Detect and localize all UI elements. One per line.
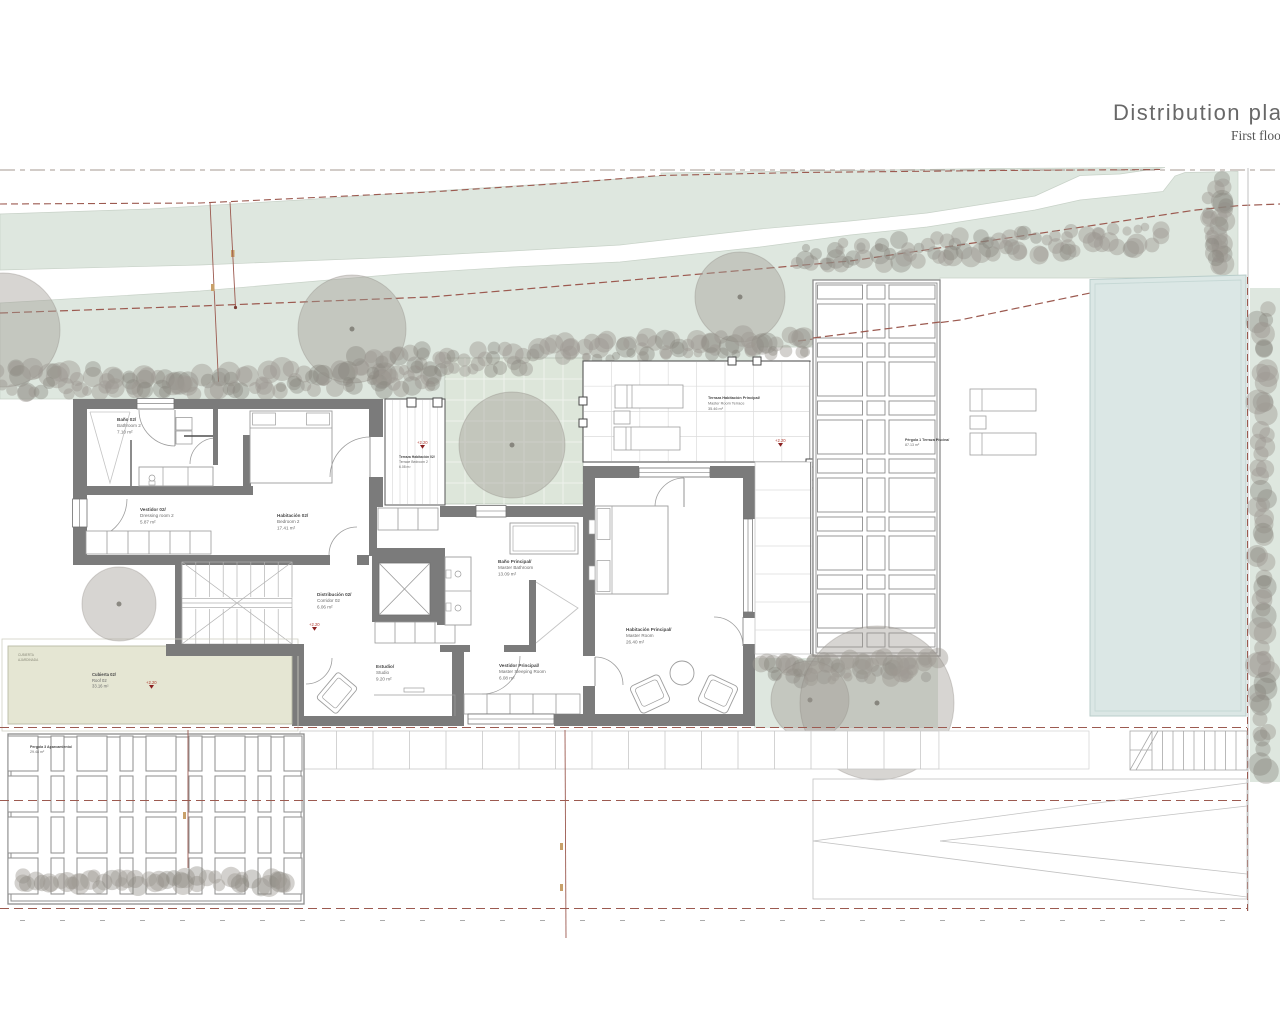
svg-text:Vestidor 02/: Vestidor 02/ [140,507,167,512]
svg-text:Bathroom 2: Bathroom 2 [117,423,141,428]
svg-text:7.10 m²: 7.10 m² [117,429,133,434]
svg-text:Cubierta 02/: Cubierta 02/ [92,672,117,677]
svg-text:Distribution plan: Distribution plan [1113,100,1280,125]
svg-text:Habitación Principal/: Habitación Principal/ [626,627,672,632]
svg-text:35.46 m²: 35.46 m² [708,407,724,411]
svg-text:5.87 m²: 5.87 m² [140,519,156,524]
svg-text:Baño 02/: Baño 02/ [117,417,137,422]
svg-text:87.13 m²: 87.13 m² [905,443,920,447]
svg-text:+2.20: +2.20 [417,440,428,445]
svg-text:Corridor 02: Corridor 02 [317,598,340,603]
svg-text:AJARDINADA: AJARDINADA [18,658,39,662]
svg-text:Bedroom 2: Bedroom 2 [277,519,300,524]
svg-text:Vestidor Principal/: Vestidor Principal/ [499,663,540,668]
svg-text:Master Room Terrace: Master Room Terrace [708,401,744,405]
svg-text:6.08 m²: 6.08 m² [399,465,411,469]
svg-text:13.09 m²: 13.09 m² [498,571,517,576]
svg-text:First floor: First floor [1231,128,1280,143]
svg-text:+2.20: +2.20 [146,680,157,685]
svg-text:Terraza Habitación Principal/: Terraza Habitación Principal/ [708,396,761,400]
svg-text:Distribución 02/: Distribución 02/ [317,592,352,597]
svg-text:Master Bathroom: Master Bathroom [498,565,533,570]
svg-text:Baño Principal/: Baño Principal/ [498,559,532,564]
svg-text:9.20 m²: 9.20 m² [376,676,392,681]
svg-text:Studio: Studio [376,670,389,675]
svg-text:Terraza Habitación 02/: Terraza Habitación 02/ [399,455,435,459]
svg-text:Master Room: Master Room [626,633,654,638]
svg-text:Pérgola 1 Terraza Piscina/: Pérgola 1 Terraza Piscina/ [905,438,949,442]
svg-text:CUBIERTA: CUBIERTA [18,653,35,657]
svg-text:6.06 m²: 6.06 m² [317,604,333,609]
svg-text:Terrace Bedroom 2: Terrace Bedroom 2 [399,460,428,464]
svg-text:Roof 02: Roof 02 [92,678,107,683]
svg-text:17.41 m²: 17.41 m² [277,525,296,530]
svg-text:Estudio/: Estudio/ [376,664,395,669]
svg-text:26.40 m²: 26.40 m² [626,639,645,644]
svg-text:Habitación 02/: Habitación 02/ [277,513,309,518]
svg-text:+2.20: +2.20 [775,438,786,443]
svg-text:Master Sleeping Room: Master Sleeping Room [499,669,546,674]
svg-text:29.48 m²: 29.48 m² [30,750,45,754]
svg-text:+2.20: +2.20 [309,622,320,627]
svg-text:6.08 m²: 6.08 m² [499,675,515,680]
svg-text:Pergola 3 Aparcamiento/: Pergola 3 Aparcamiento/ [30,745,72,749]
svg-text:Dressing room 2: Dressing room 2 [140,513,174,518]
svg-text:33.16 m²: 33.16 m² [92,684,109,689]
